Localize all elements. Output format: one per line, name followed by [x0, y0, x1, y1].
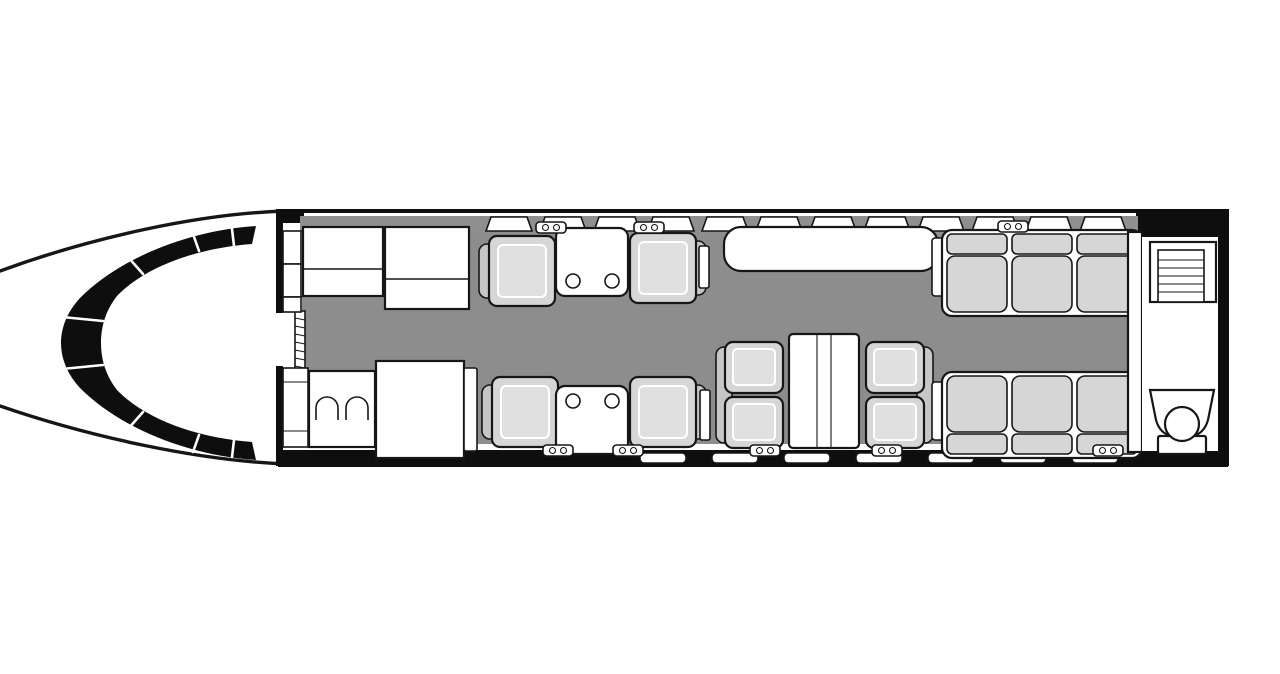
cupholder [566, 394, 580, 408]
window [784, 453, 830, 463]
wardrobe-closet [376, 361, 477, 458]
wall-latch [543, 445, 573, 456]
aft-lavatory [1128, 232, 1218, 454]
wall-latch [536, 222, 566, 233]
wall-latch [750, 445, 780, 456]
club-chair [630, 377, 706, 447]
three-place-divan [942, 230, 1142, 316]
forward-seat [309, 371, 375, 447]
wall-latch [634, 222, 664, 233]
window [1080, 217, 1126, 231]
aft-bulkhead [1128, 232, 1142, 452]
conference-table [789, 334, 859, 448]
cockpit-windshield [61, 226, 256, 460]
cockpit-bulkhead-cells [283, 231, 301, 312]
accordion-divider [295, 311, 305, 372]
wall-latch [998, 221, 1028, 232]
wall-latch [1093, 445, 1123, 456]
wall-latch [613, 445, 643, 456]
side-table [556, 386, 628, 454]
conference-group [716, 334, 933, 448]
cupholder [605, 394, 619, 408]
club-chair [479, 236, 555, 306]
window [640, 453, 686, 463]
side-table [556, 228, 628, 296]
wall-ledge [700, 390, 710, 440]
cupholder [566, 274, 580, 288]
club-chair [482, 377, 558, 447]
galley [303, 227, 469, 309]
crew-bench [283, 368, 308, 447]
cupholder [605, 274, 619, 288]
club-chair [630, 233, 706, 303]
credenza [724, 227, 938, 271]
vanity-shelves [1150, 242, 1216, 302]
wall-ledge [699, 246, 709, 288]
window [1026, 217, 1072, 231]
window [486, 217, 532, 231]
wall-latch [872, 445, 902, 456]
toilet [1150, 390, 1214, 454]
aircraft-floor-plan-diagram [0, 0, 1280, 674]
